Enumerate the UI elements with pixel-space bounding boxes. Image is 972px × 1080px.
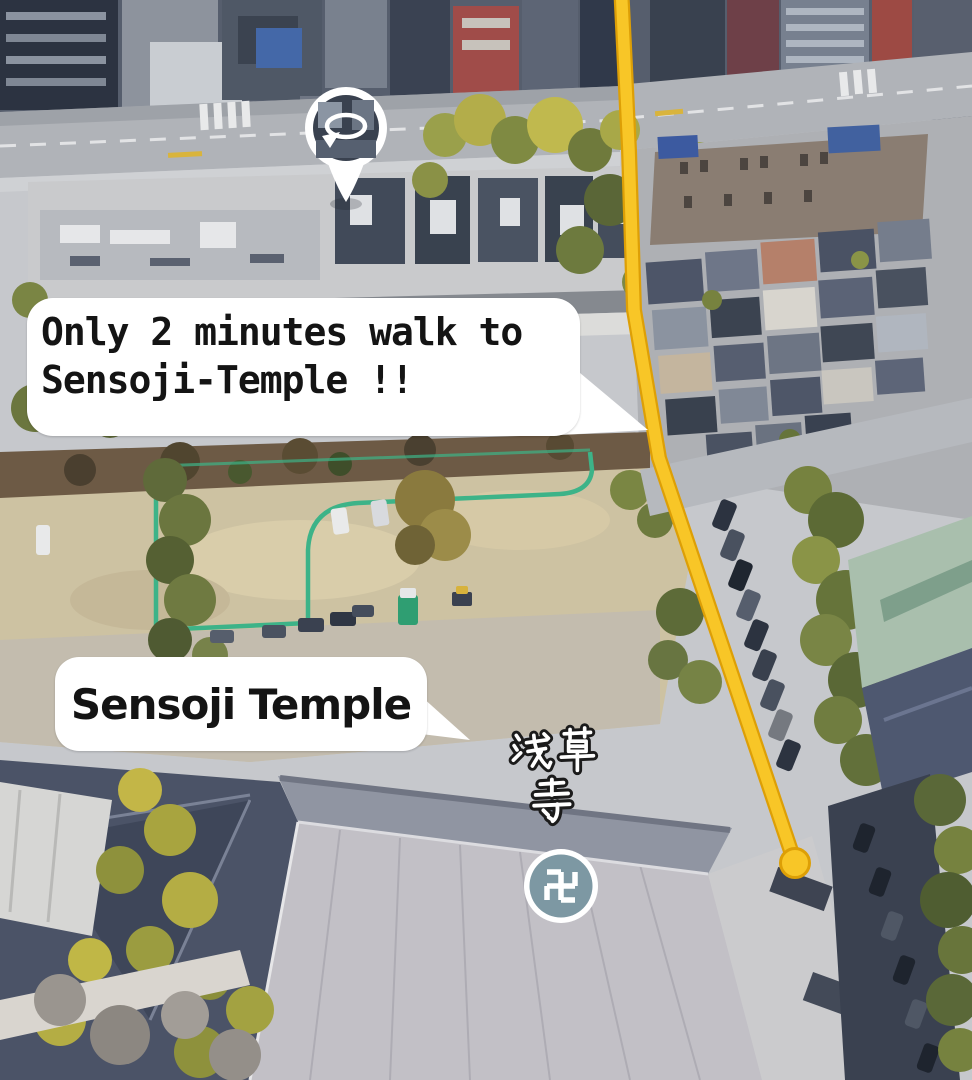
walk-bubble-line2: Sensoji-Temple !! bbox=[41, 357, 580, 405]
temple-label-bubble: Sensoji Temple bbox=[55, 657, 427, 751]
walk-bubble-line1: Only 2 minutes walk to bbox=[41, 309, 580, 357]
screenshot-stage: Only 2 minutes walk to Sensoji-Temple !!… bbox=[0, 0, 972, 1080]
aerial-map-background bbox=[0, 0, 972, 1080]
temple-label-text: Sensoji Temple bbox=[71, 680, 411, 729]
walk-time-bubble: Only 2 minutes walk to Sensoji-Temple !! bbox=[27, 298, 580, 436]
